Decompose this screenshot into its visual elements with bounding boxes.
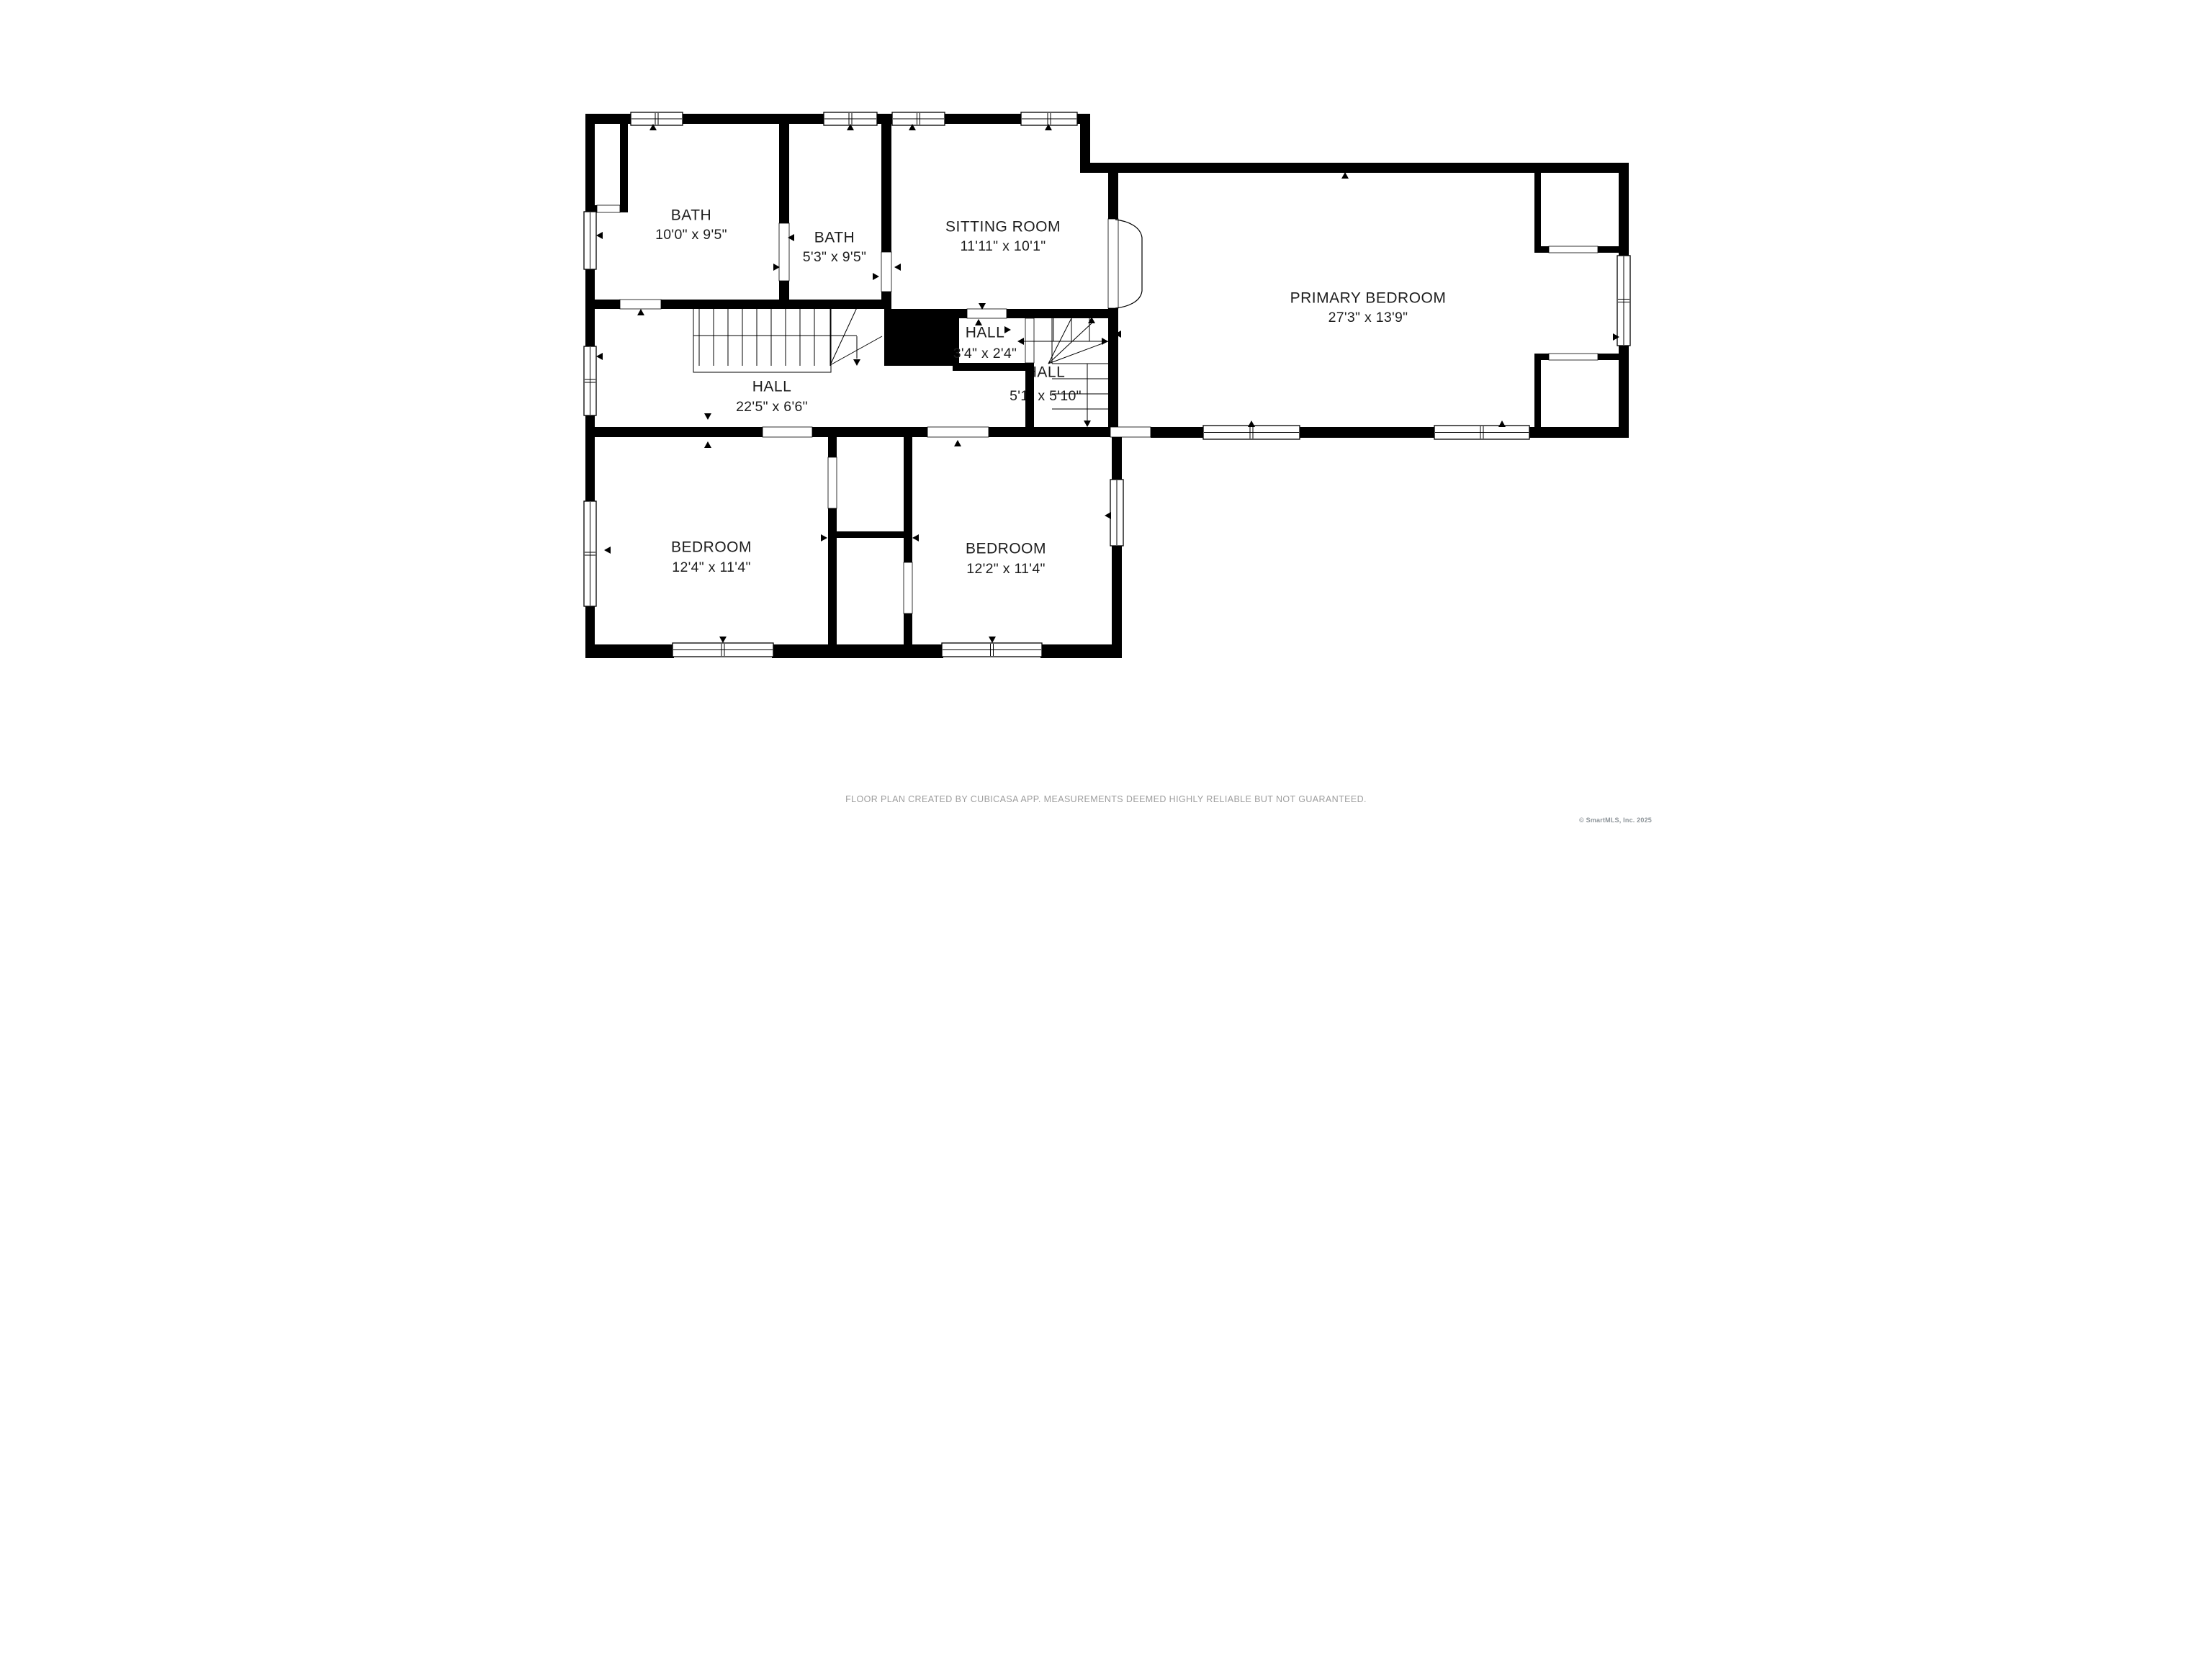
room-label-bath-2: BATH — [814, 230, 855, 246]
wall — [958, 309, 967, 318]
wall — [828, 531, 912, 538]
room-dims-bedroom-2: 12'2" x 11'4" — [966, 561, 1045, 577]
direction-arrow-left — [596, 353, 603, 360]
room-dims-bath-1: 10'0" x 9'5" — [655, 227, 727, 243]
floor-plan-page: HALL 5'1" x 5'10" BATH 10'0" x 9'5" BATH… — [553, 0, 1659, 829]
wall — [1619, 344, 1629, 438]
wall — [1040, 644, 1122, 658]
direction-arrow-right — [873, 273, 879, 280]
wall — [904, 431, 912, 563]
wall — [1619, 163, 1629, 257]
direction-arrow-left — [1105, 512, 1111, 519]
wall — [585, 269, 595, 348]
room-dims-hall-main: 22'5" x 6'6" — [736, 399, 808, 415]
wall — [1534, 354, 1541, 436]
room-dims-hall-small: 3'4" x 2'4" — [953, 346, 1017, 361]
direction-arrow-down — [989, 637, 996, 643]
wall — [884, 309, 959, 366]
direction-arrow-left — [1017, 338, 1024, 345]
wall — [585, 114, 595, 213]
wall — [1528, 427, 1629, 438]
stair-tread-line — [1048, 341, 1108, 364]
footer-disclaimer: FLOOR PLAN CREATED BY CUBICASA APP. MEAS… — [553, 794, 1659, 804]
door-opening — [1108, 219, 1118, 308]
direction-arrow-left — [894, 264, 901, 271]
wall — [953, 363, 1034, 371]
door-opening — [1110, 427, 1151, 437]
wall — [1007, 309, 1108, 318]
door-opening — [1549, 354, 1598, 360]
wall — [1112, 437, 1122, 482]
door-opening — [620, 300, 661, 309]
copyright-notice: © SmartMLS, Inc. 2025 — [1579, 817, 1652, 824]
wall — [1108, 171, 1118, 219]
room-label-bath-1: BATH — [671, 207, 711, 224]
direction-arrow-up — [954, 440, 961, 446]
stair-outline — [693, 306, 831, 372]
room-label-hall-main: HALL — [752, 379, 792, 395]
direction-arrow-down — [1084, 421, 1091, 427]
wall — [904, 613, 912, 645]
direction-arrow-left — [596, 232, 603, 239]
door-opening — [1025, 318, 1034, 363]
direction-arrow-up — [704, 441, 711, 448]
direction-arrow-right — [821, 534, 827, 541]
wall — [828, 508, 837, 645]
room-dims-primary-bedroom: 27'3" x 13'9" — [1328, 310, 1408, 325]
wall — [1080, 124, 1090, 173]
door-opening — [1549, 246, 1598, 253]
wall — [772, 644, 943, 658]
direction-arrow-down — [704, 413, 711, 420]
direction-arrow-up — [637, 309, 644, 315]
direction-arrow-right — [1004, 326, 1011, 333]
door-opening — [881, 252, 891, 292]
wall — [779, 124, 789, 223]
wall — [1108, 308, 1118, 428]
wall — [1151, 427, 1205, 438]
wall — [1025, 363, 1034, 428]
direction-arrow-up — [1498, 421, 1506, 427]
wall — [620, 124, 628, 205]
direction-arrow-left — [604, 547, 611, 554]
room-dims-hall-stairs: 5'1" x 5'10" — [1010, 388, 1082, 404]
room-label-sitting-room: SITTING ROOM — [945, 219, 1061, 235]
floor-plan-drawing: HALL 5'1" x 5'10" BATH 10'0" x 9'5" BATH… — [553, 0, 1659, 829]
door-opening — [927, 427, 989, 437]
wall — [1298, 427, 1436, 438]
wall — [683, 114, 824, 124]
door-opening — [763, 427, 812, 437]
door-opening — [828, 457, 837, 508]
wall — [1080, 163, 1629, 173]
wall — [945, 114, 1021, 124]
wall — [1112, 544, 1122, 658]
door-swing-layer — [1115, 220, 1142, 308]
wall — [1077, 114, 1090, 124]
wall — [1534, 163, 1541, 253]
room-label-hall-small: HALL — [966, 325, 1005, 341]
wall — [585, 644, 674, 658]
wall — [595, 300, 620, 309]
wall — [828, 431, 837, 458]
room-label-bedroom-1: BEDROOM — [671, 539, 752, 556]
wall — [585, 427, 763, 437]
door-opening — [904, 562, 912, 613]
direction-arrow-left — [912, 534, 919, 541]
room-label-primary-bedroom: PRIMARY BEDROOM — [1290, 290, 1447, 307]
walls-layer — [585, 114, 1629, 658]
direction-arrow-up — [1248, 421, 1255, 427]
room-dims-sitting-room: 11'11" x 10'1" — [960, 238, 1046, 254]
door-opening — [597, 205, 620, 212]
door-swing-arc — [1115, 220, 1142, 308]
room-dims-bath-2: 5'3" x 9'5" — [803, 249, 867, 265]
wall — [989, 427, 1110, 437]
door-opening — [967, 309, 1007, 318]
door-opening — [779, 223, 789, 281]
wall — [881, 124, 891, 252]
direction-arrow-up — [1341, 172, 1349, 179]
wall — [877, 114, 892, 124]
direction-arrow-right — [1102, 338, 1108, 345]
room-label-bedroom-2: BEDROOM — [966, 541, 1046, 557]
room-dims-bedroom-1: 12'4" x 11'4" — [672, 559, 750, 575]
stair-tread-line — [830, 305, 858, 365]
stair-tread-line — [1048, 323, 1092, 364]
direction-arrow-down — [853, 359, 860, 366]
direction-arrow-down — [719, 637, 727, 643]
